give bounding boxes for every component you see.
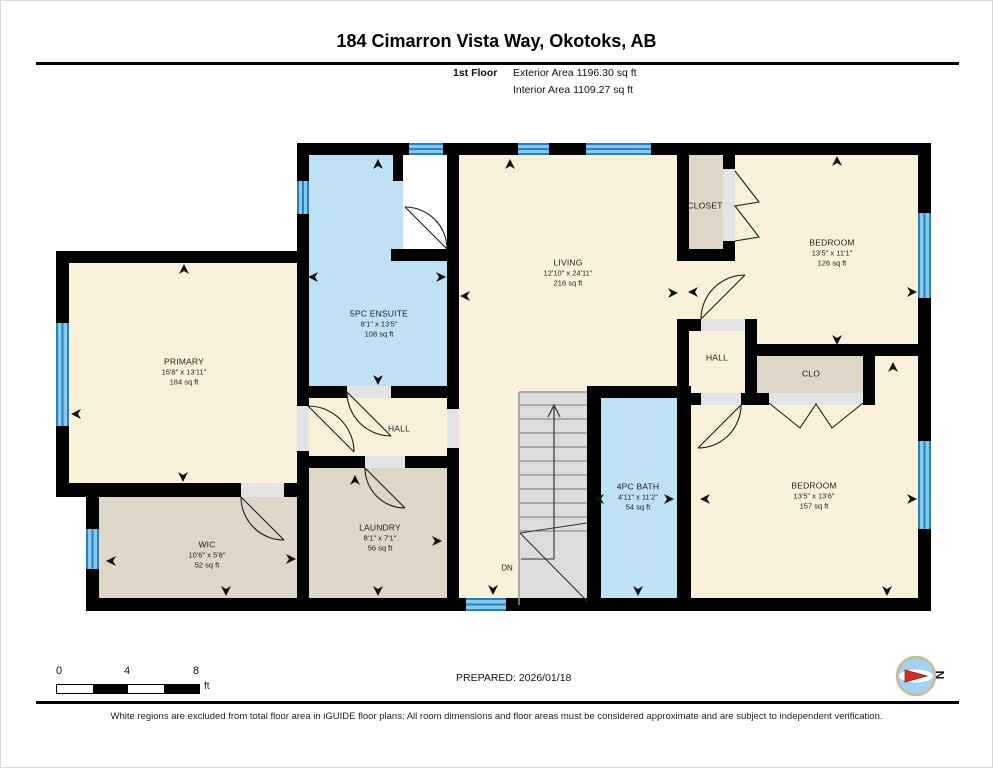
room-label-ensuite: 5PC ENSUITE 8'1" x 13'5" 108 sq ft [350,309,408,340]
room-label-laundry: LAUNDRY 8'1" x 7'1" 56 sq ft [359,523,401,554]
room-label-living: LIVING 12'10" x 24'11" 216 sq ft [544,258,593,289]
room-label-primary: PRIMARY 15'8" x 13'11" 184 sq ft [162,357,207,388]
room-label-hall-right: HALL [706,352,728,363]
room-label-hall-center: HALL [388,423,410,434]
room-label-clo: CLO [802,368,820,379]
room-label-bedroom-upper: BEDROOM 13'5" x 11'1" 126 sq ft [809,238,854,269]
stairs-down-label: DN [501,564,513,573]
room-label-bath: 4PC BATH 4'11" x 11'2" 54 sq ft [617,482,660,513]
floor-plan-page: 184 Cimarron Vista Way, Okotoks, AB 1st … [0,0,993,768]
plan-overlay [1,1,993,768]
room-label-closet: CLOSET [687,200,722,211]
room-label-wic: WIC 10'6" x 5'8" 52 sq ft [189,540,226,571]
room-label-bedroom-lower: BEDROOM 13'5" x 13'6" 157 sq ft [791,481,836,512]
compass-icon [886,651,946,701]
